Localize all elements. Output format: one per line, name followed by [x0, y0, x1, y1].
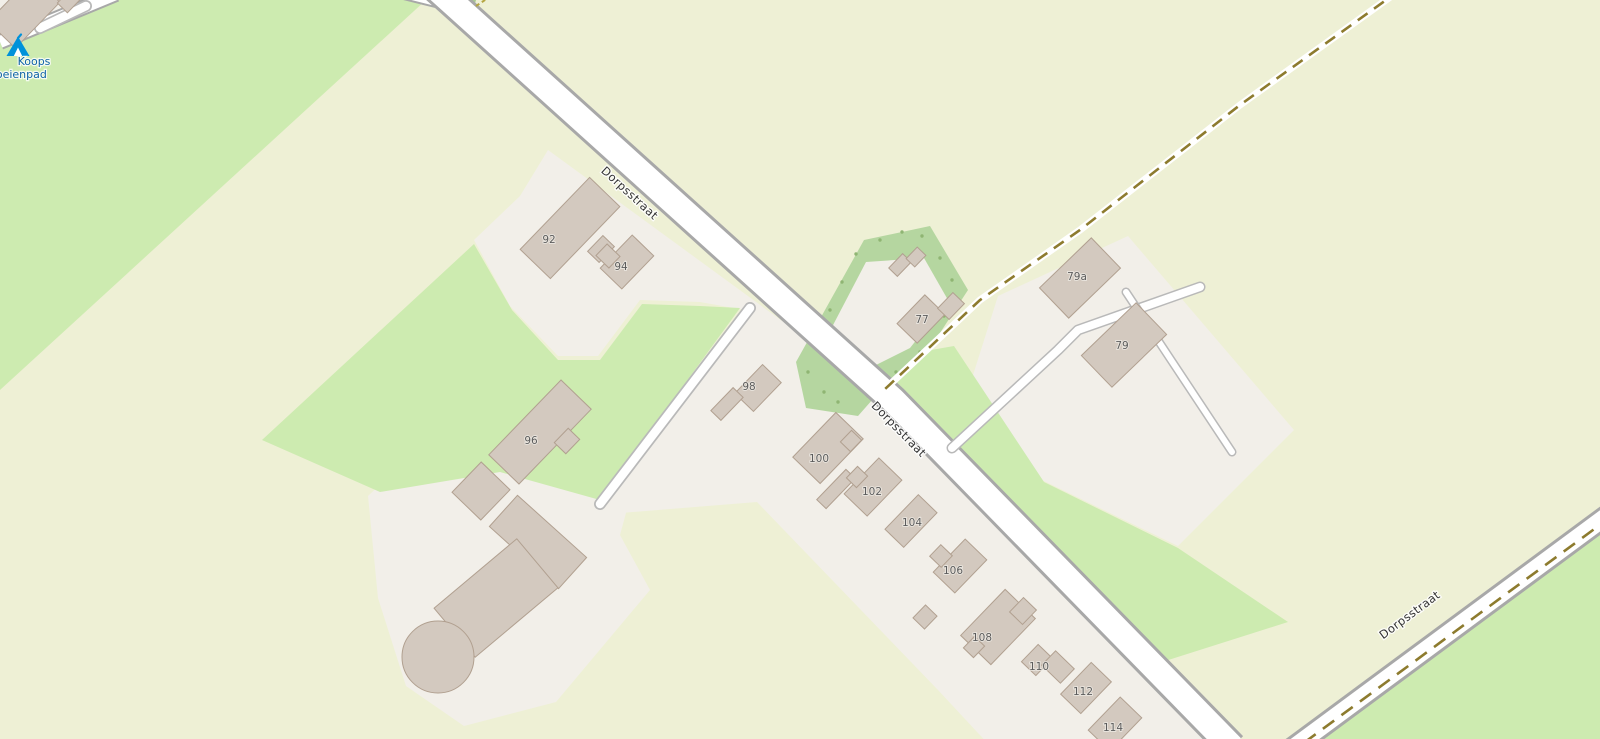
house-number-label: 94	[614, 261, 628, 273]
house-number-label: 104	[902, 517, 922, 529]
campsite-name-line1: Koops	[18, 55, 51, 68]
house-number-label: 106	[943, 565, 963, 577]
silo-96	[402, 621, 474, 693]
house-number-label: 96	[524, 435, 538, 447]
house-number-label: 79	[1115, 340, 1128, 352]
house-number-label: 114	[1103, 722, 1123, 734]
house-number-label: 77	[915, 314, 928, 326]
house-number-label: 102	[862, 486, 882, 498]
house-number-label: 100	[809, 453, 829, 465]
house-number-label: 112	[1073, 686, 1093, 698]
house-number-label: 92	[542, 234, 555, 246]
house-number-label: 108	[972, 632, 992, 644]
campsite-name-line2: Koeienpad	[0, 68, 47, 81]
house-number-label: 110	[1029, 661, 1049, 673]
map-viewport[interactable]: 929496981001021041061081101121147779a79 …	[0, 0, 1600, 739]
house-number-label: 98	[742, 381, 755, 393]
map-canvas[interactable]: 929496981001021041061081101121147779a79 …	[0, 0, 1600, 739]
house-number-label: 79a	[1067, 271, 1087, 283]
